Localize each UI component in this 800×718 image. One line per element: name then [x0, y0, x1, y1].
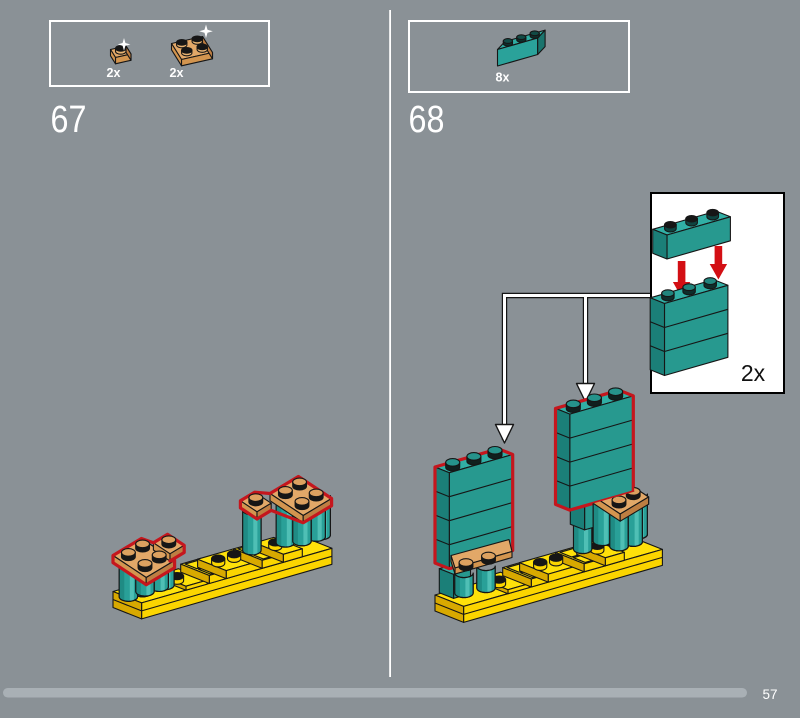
svg-text:68: 68 — [409, 98, 445, 140]
svg-text:2x: 2x — [170, 66, 184, 80]
svg-text:67: 67 — [51, 98, 87, 140]
svg-text:2x: 2x — [741, 360, 766, 386]
svg-text:57: 57 — [762, 687, 777, 702]
svg-text:8x: 8x — [496, 71, 510, 85]
svg-text:2x: 2x — [107, 66, 121, 80]
